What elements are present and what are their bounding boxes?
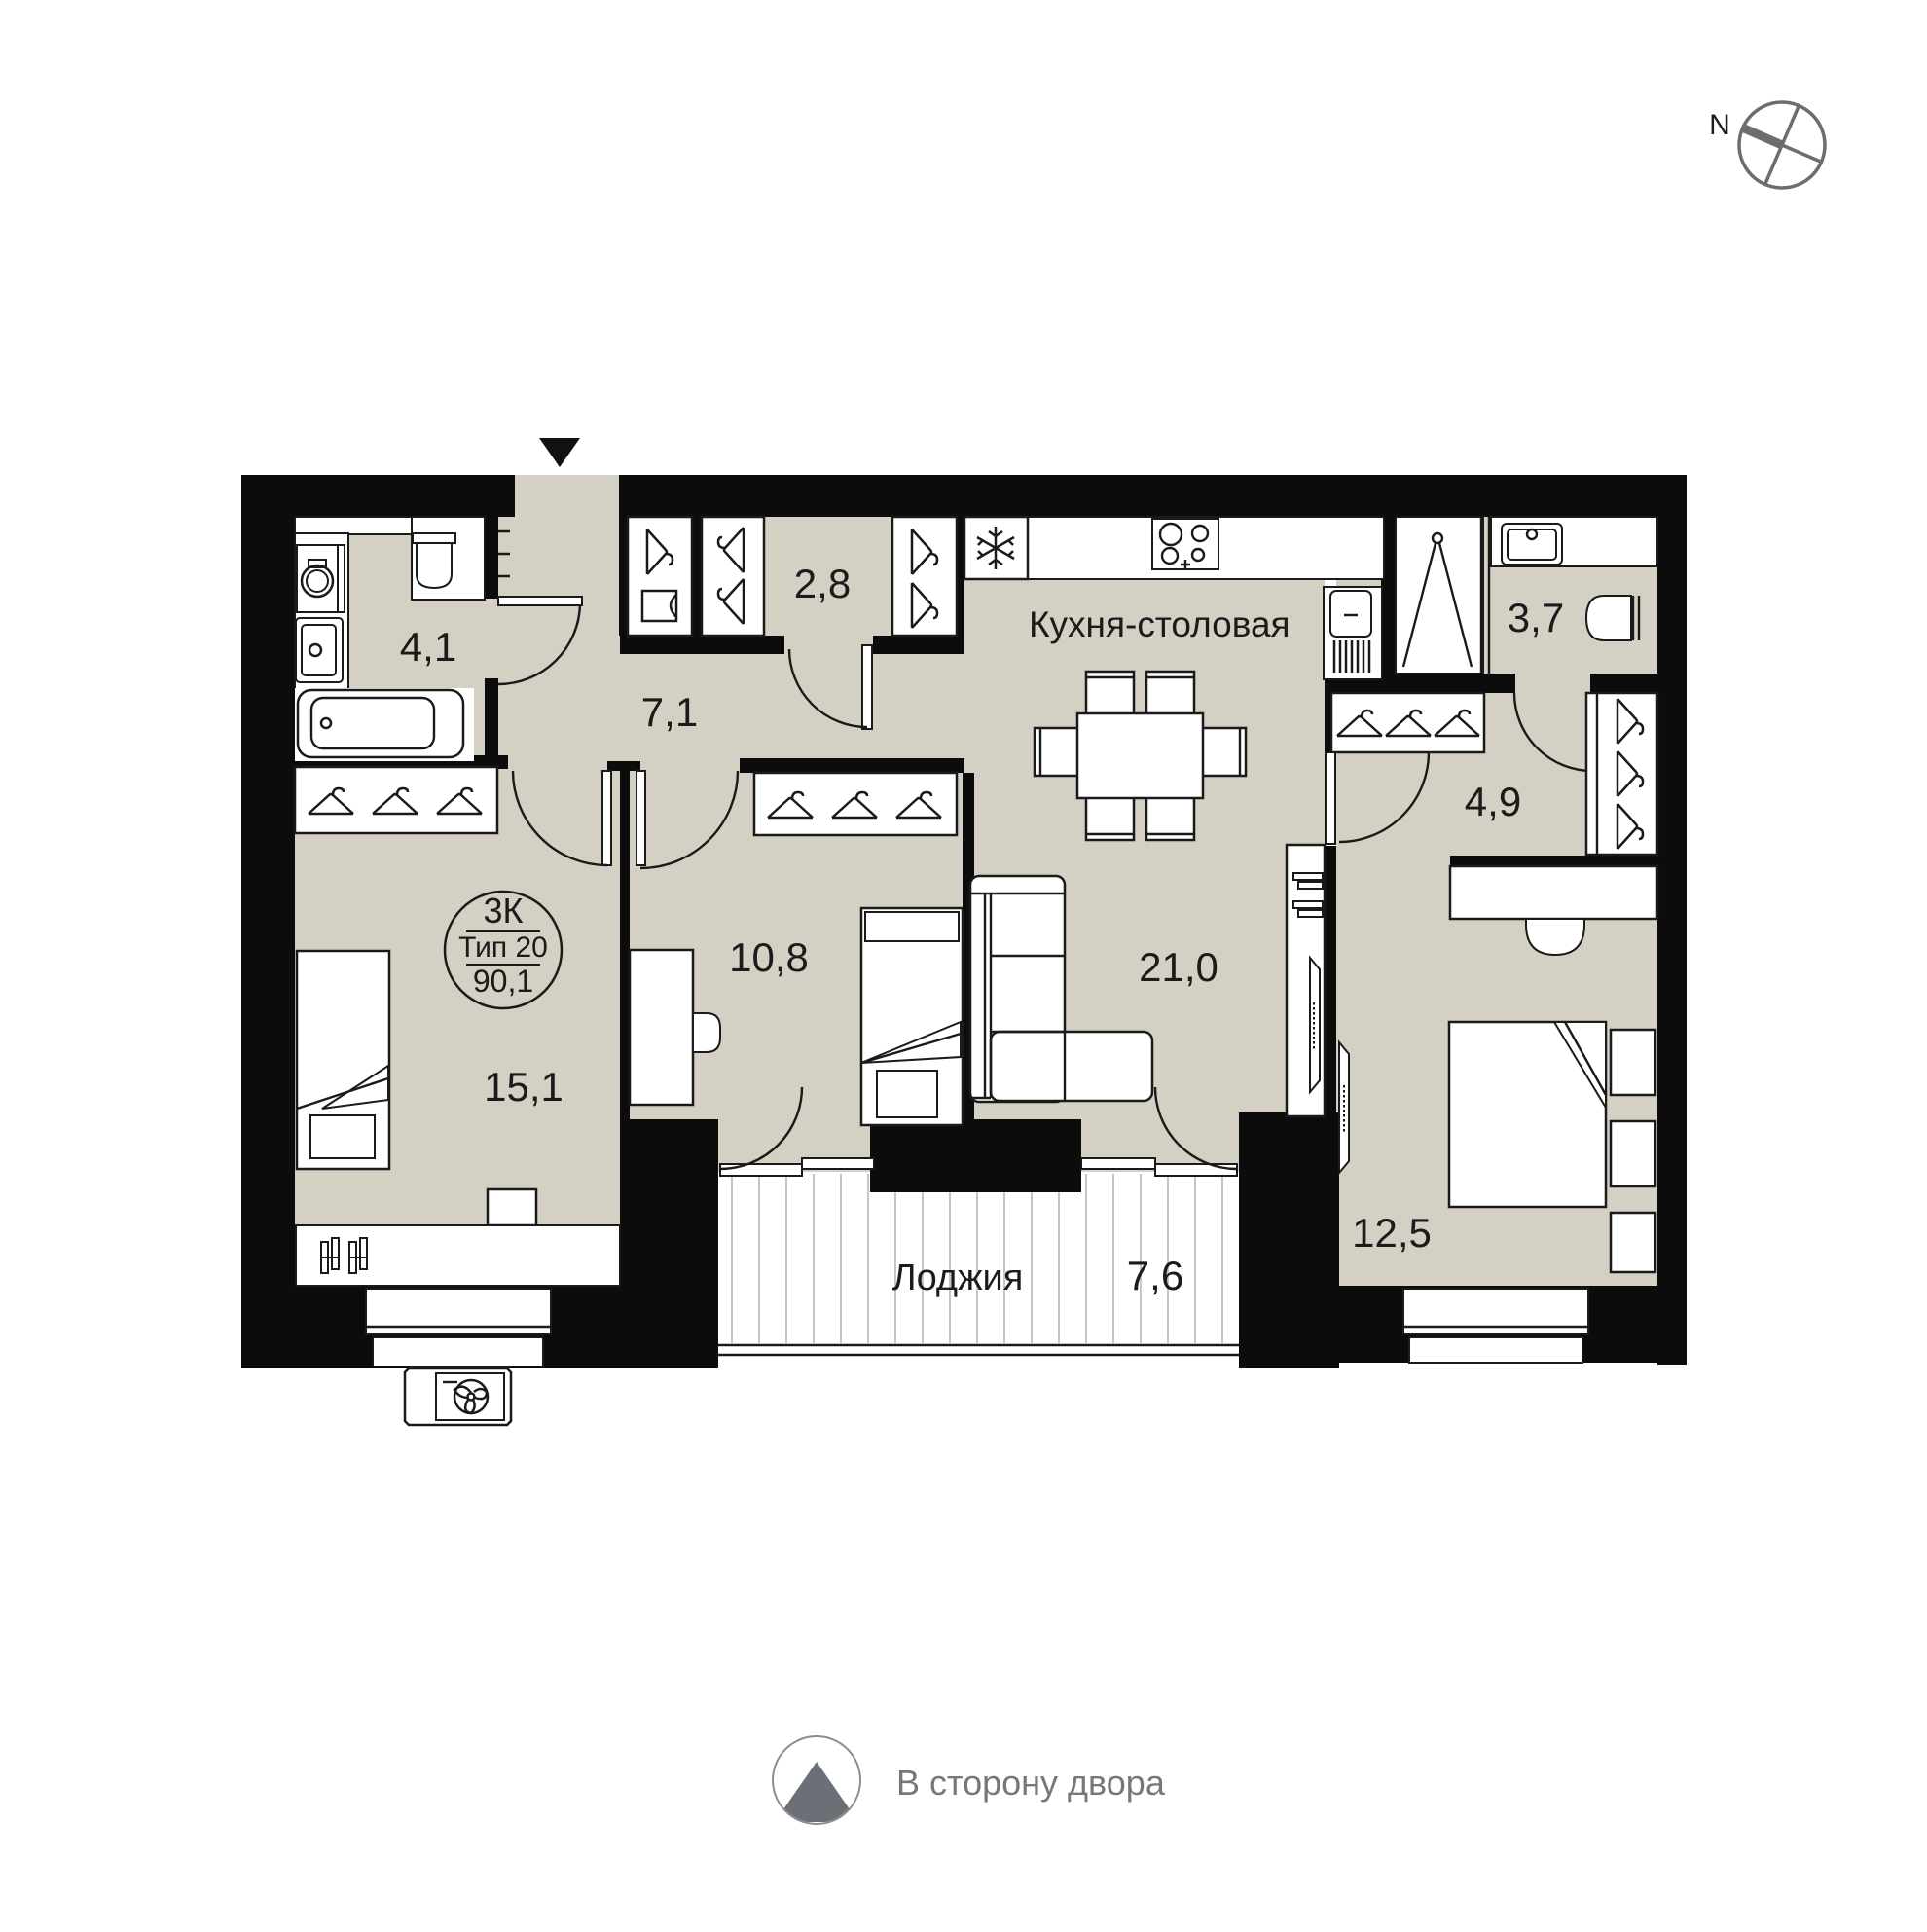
svg-text:Тип 20: Тип 20 [458, 931, 548, 964]
svg-text:3,7: 3,7 [1508, 595, 1564, 640]
svg-text:N: N [1709, 109, 1730, 141]
svg-text:В сторону двора: В сторону двора [896, 1763, 1166, 1803]
svg-text:21,0: 21,0 [1139, 944, 1218, 990]
svg-text:Лоджия: Лоджия [892, 1258, 1024, 1298]
svg-text:90,1: 90,1 [473, 964, 533, 999]
svg-text:10,8: 10,8 [729, 934, 809, 980]
svg-text:15,1: 15,1 [484, 1064, 564, 1110]
svg-text:7,1: 7,1 [641, 689, 698, 735]
svg-text:Кухня-столовая: Кухня-столовая [1029, 604, 1291, 644]
svg-text:3К: 3К [484, 891, 524, 930]
svg-text:4,9: 4,9 [1465, 779, 1521, 824]
svg-text:2,8: 2,8 [794, 561, 851, 606]
svg-text:4,1: 4,1 [400, 624, 456, 670]
svg-text:12,5: 12,5 [1352, 1210, 1432, 1256]
svg-text:7,6: 7,6 [1127, 1253, 1183, 1298]
